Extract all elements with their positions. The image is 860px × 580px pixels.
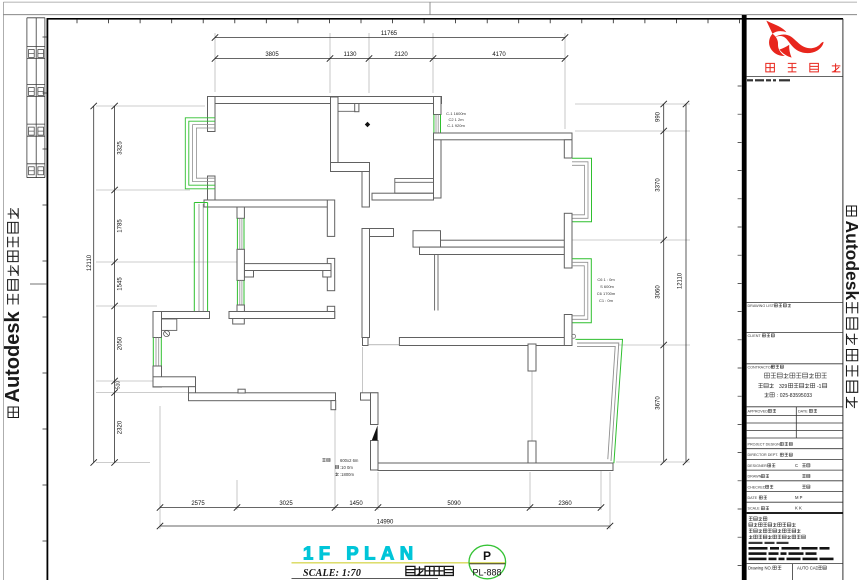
svg-text::10 0m: :10 0m	[340, 465, 353, 470]
svg-text:12110: 12110	[87, 254, 93, 271]
svg-text:Autodesk: Autodesk	[842, 221, 860, 301]
svg-text:DATE: DATE	[748, 496, 758, 500]
svg-text:CONTRACTOR: CONTRACTOR	[748, 365, 774, 369]
svg-text:11765: 11765	[381, 31, 398, 37]
svg-text:3805: 3805	[265, 52, 279, 58]
svg-text:DIRECTOR DEPT.: DIRECTOR DEPT.	[748, 453, 779, 457]
svg-text:S 600m: S 600m	[600, 284, 614, 289]
svg-text:Drawing NO.: Drawing NO.	[748, 566, 772, 571]
svg-text:329: 329	[779, 384, 788, 390]
svg-text::1800m: :1800m	[340, 472, 354, 477]
svg-text:APPROVED: APPROVED	[748, 410, 769, 414]
svg-text:3025: 3025	[279, 501, 293, 507]
svg-text:Autodesk: Autodesk	[2, 311, 24, 403]
svg-text:5090: 5090	[447, 501, 461, 507]
svg-text:990: 990	[656, 111, 662, 122]
svg-text:3060: 3060	[656, 285, 662, 299]
svg-text:K K: K K	[795, 506, 802, 511]
svg-text:1545: 1545	[118, 277, 124, 291]
svg-text:600x2 6m: 600x2 6m	[340, 458, 359, 463]
svg-text:C1 : 0m: C1 : 0m	[599, 298, 614, 303]
svg-text:SCALE: 1:70: SCALE: 1:70	[303, 568, 361, 579]
svg-text:-1: -1	[817, 384, 822, 390]
svg-text:PROJECT DESIGN: PROJECT DESIGN	[748, 443, 781, 447]
svg-text:1F PLAN: 1F PLAN	[303, 543, 419, 564]
svg-text:3670: 3670	[656, 396, 662, 410]
svg-text:C-1 920m: C-1 920m	[447, 123, 465, 128]
svg-text:510: 510	[116, 381, 122, 390]
svg-text:14990: 14990	[377, 520, 394, 526]
svg-text:C6 1700m: C6 1700m	[597, 291, 616, 296]
svg-text:CHECKED: CHECKED	[748, 485, 766, 489]
svg-text:4170: 4170	[492, 52, 506, 58]
svg-text:3370: 3370	[656, 178, 662, 192]
svg-text:1785: 1785	[118, 219, 124, 233]
svg-text:DESIGNER: DESIGNER	[748, 464, 768, 468]
svg-text:2120: 2120	[394, 52, 408, 58]
svg-text:C-1 1600m: C-1 1600m	[446, 111, 466, 116]
svg-text:CLIENT: CLIENT	[748, 334, 762, 338]
svg-text:3325: 3325	[118, 141, 124, 155]
svg-text:2575: 2575	[191, 501, 205, 507]
svg-text:DRAWN: DRAWN	[748, 475, 762, 479]
svg-text:C2 1 2m: C2 1 2m	[448, 117, 464, 122]
svg-text:SCALE: SCALE	[748, 507, 761, 511]
svg-text:DATE: DATE	[798, 410, 808, 414]
svg-text:C: C	[795, 463, 798, 468]
svg-text:2360: 2360	[558, 501, 572, 507]
svg-text:PL-888: PL-888	[472, 567, 501, 577]
svg-text:1450: 1450	[349, 501, 363, 507]
svg-text:2050: 2050	[118, 336, 124, 350]
svg-text:2320: 2320	[118, 420, 124, 434]
svg-text:P: P	[483, 549, 491, 563]
svg-text:DRAWING LIST: DRAWING LIST	[748, 304, 775, 308]
svg-text:M P: M P	[795, 495, 803, 500]
svg-text:C6 1 : 0m: C6 1 : 0m	[597, 277, 615, 282]
svg-text:1130: 1130	[344, 52, 358, 58]
svg-text:: 025-83595033: : 025-83595033	[777, 393, 812, 399]
svg-text:AUTO CAD: AUTO CAD	[797, 566, 819, 571]
svg-text:12110: 12110	[678, 272, 684, 289]
